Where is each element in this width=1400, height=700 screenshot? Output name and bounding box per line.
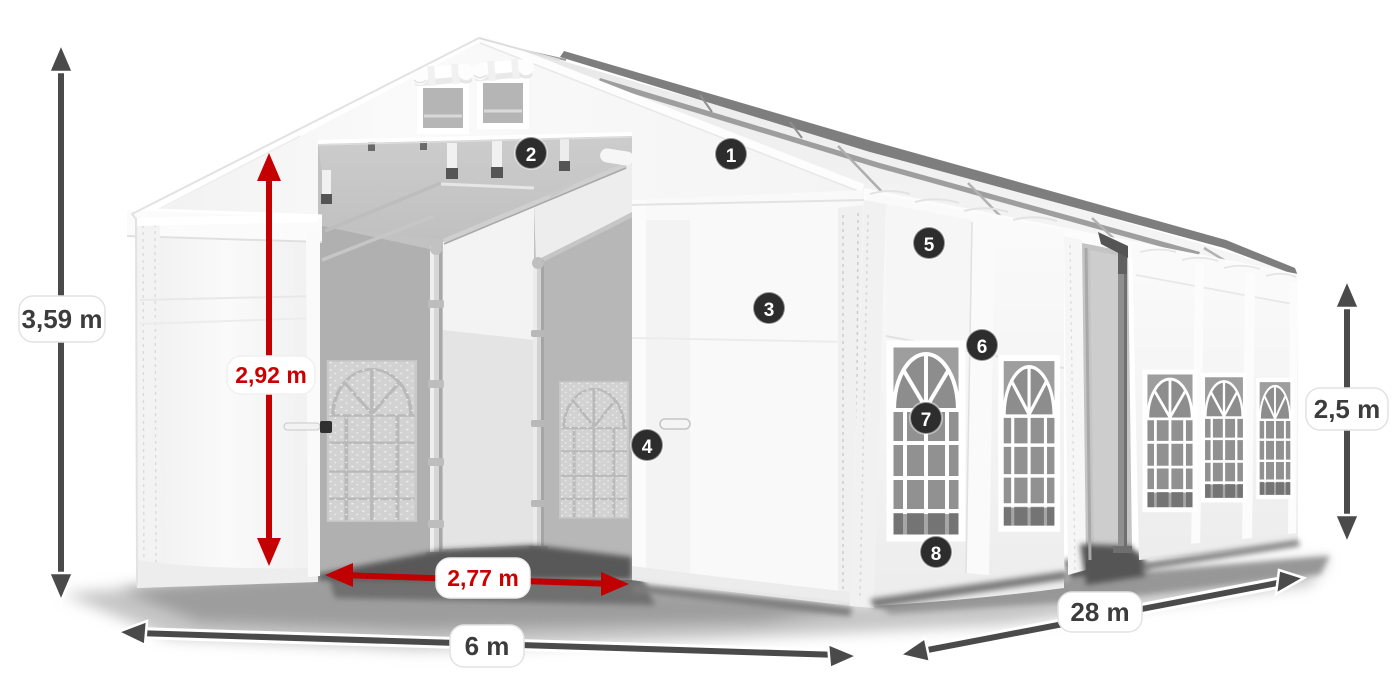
svg-text:8: 8 bbox=[931, 544, 942, 565]
svg-text:2,77 m: 2,77 m bbox=[447, 565, 519, 591]
svg-text:1: 1 bbox=[726, 146, 737, 167]
svg-text:5: 5 bbox=[924, 235, 935, 256]
svg-text:6 m: 6 m bbox=[465, 631, 510, 661]
svg-text:6: 6 bbox=[977, 337, 988, 358]
svg-text:7: 7 bbox=[921, 410, 932, 431]
svg-text:3,59 m: 3,59 m bbox=[22, 304, 103, 334]
svg-text:4: 4 bbox=[642, 437, 653, 458]
svg-text:28 m: 28 m bbox=[1070, 597, 1129, 627]
svg-text:2,5 m: 2,5 m bbox=[1314, 394, 1381, 424]
svg-text:2,92 m: 2,92 m bbox=[235, 362, 307, 388]
svg-text:3: 3 bbox=[764, 300, 775, 321]
svg-text:2: 2 bbox=[526, 145, 537, 166]
